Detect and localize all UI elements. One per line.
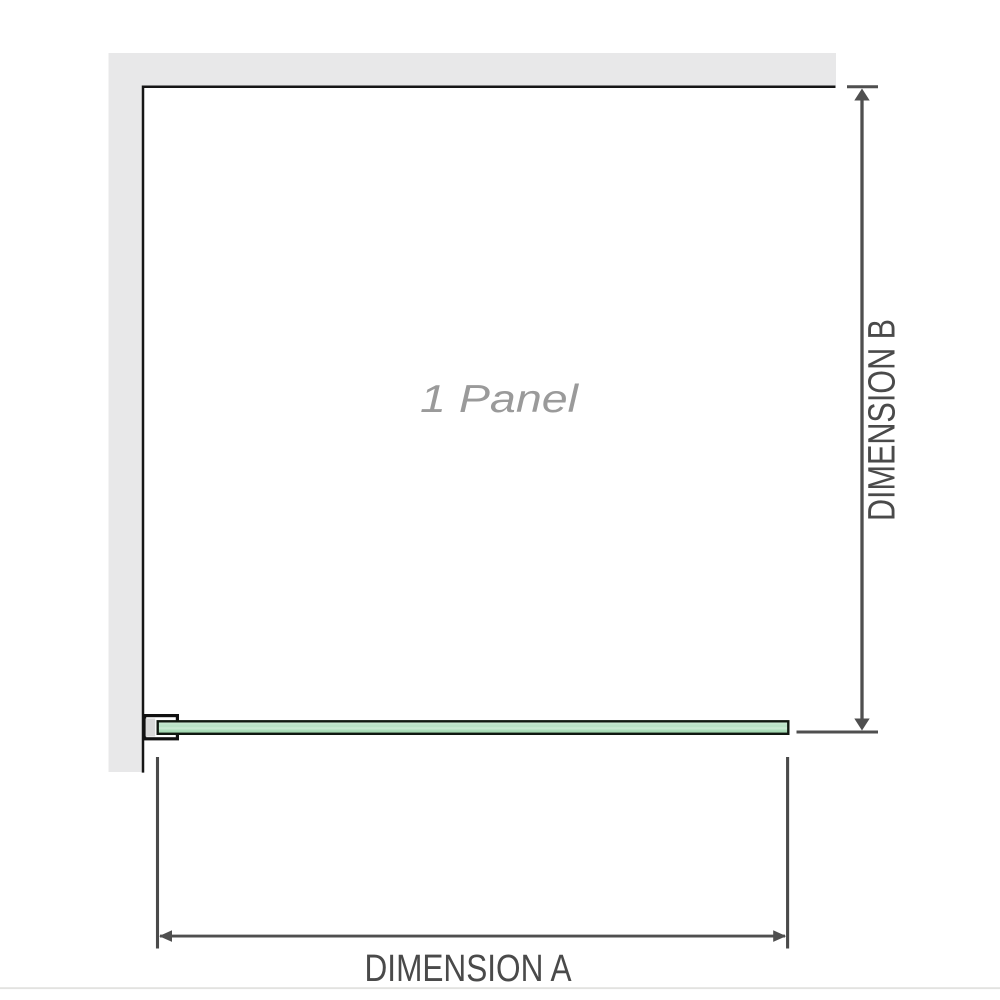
svg-text:DIMENSION B: DIMENSION B xyxy=(861,319,904,521)
svg-text:DIMENSION A: DIMENSION A xyxy=(365,947,572,990)
svg-text:1 Panel: 1 Panel xyxy=(420,378,580,421)
